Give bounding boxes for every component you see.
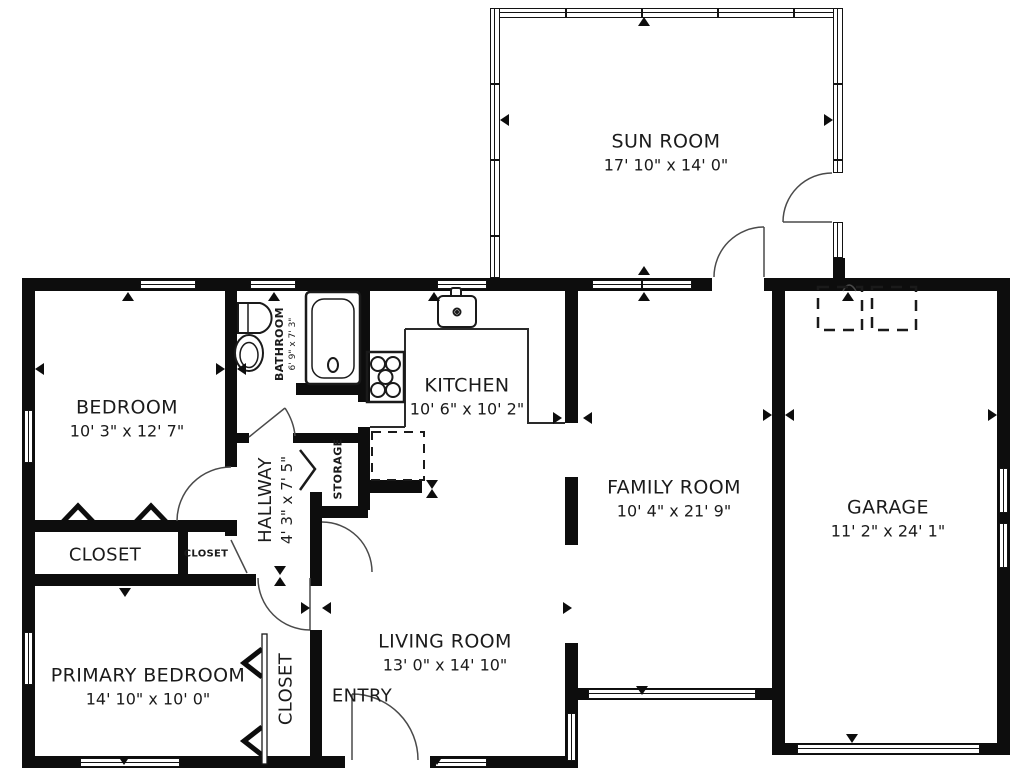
sunroom-family-door [714, 227, 764, 277]
window-garage-right-1 [999, 468, 1008, 513]
wall-kitchen-left [358, 291, 370, 402]
door-opening-entry [345, 756, 430, 768]
closet-rod-icon [244, 727, 262, 755]
bathtub-inner [312, 299, 354, 378]
room-name: CLOSET [277, 653, 298, 725]
window-kitchen-top [437, 280, 487, 289]
wall-family-left-mid [565, 477, 578, 545]
room-label-family-room: FAMILY ROOM 10' 4" x 21' 9" [607, 477, 741, 520]
kitchen-appliance-outline [372, 432, 424, 480]
window-bathroom-top [250, 280, 296, 289]
room-name: SUN ROOM [604, 131, 729, 153]
sunroom-window-wall-left [490, 8, 500, 278]
room-name: CLOSET [69, 546, 141, 567]
room-name: BATHROOM [274, 307, 287, 381]
garage-equipment-outline [872, 287, 916, 330]
wall-kitchen-family [565, 291, 578, 423]
room-dims: 10' 4" x 21' 9" [607, 502, 741, 520]
room-dims: 13' 0" x 14' 10" [378, 656, 512, 674]
label-closet-primary: CLOSET [277, 653, 298, 725]
wall-hall-left-stub [225, 520, 237, 536]
room-label-garage: GARAGE 11' 2" x 24' 1" [831, 497, 945, 540]
room-label-kitchen: KITCHEN 10' 6" x 10' 2" [410, 375, 524, 418]
wall-hall-top-stub [237, 433, 249, 443]
room-name: LIVING ROOM [378, 631, 512, 653]
sunroom-window-wall-right-upper [833, 8, 843, 173]
label-storage: STORAGE [333, 438, 346, 499]
room-label-sun-room: SUN ROOM 17' 10" x 14' 0" [604, 131, 729, 174]
room-name: PRIMARY BEDROOM [51, 665, 245, 687]
storage-bifold-door [300, 450, 315, 490]
bathtub-icon [306, 292, 360, 384]
window-bedroom-top [140, 280, 196, 289]
primary-closet-front [262, 634, 267, 764]
garage-equipment-outline [818, 287, 862, 330]
window-primary-left [24, 632, 33, 685]
room-dims: 6' 9" x 7' 3" [288, 307, 298, 381]
room-label-bathroom: BATHROOM 6' 9" x 7' 3" [274, 307, 298, 381]
kitchen-sink-icon [438, 288, 476, 327]
wall-hall-right [310, 492, 322, 576]
room-name: ENTRY [332, 687, 392, 708]
floor-plan: SUN ROOM 17' 10" x 14' 0" BEDROOM 10' 3"… [0, 0, 1024, 768]
sunroom-window-wall-top [490, 8, 843, 18]
hall-closet-door [231, 540, 247, 573]
window-divider [641, 280, 643, 289]
label-entry: ENTRY [332, 687, 392, 708]
room-label-hallway: HALLWAY 4' 3" x 7' 5" [256, 456, 296, 544]
window-bedroom-left [24, 410, 33, 463]
window-primary-bottom [80, 758, 180, 767]
room-dims: 14' 10" x 10' 0" [51, 690, 245, 708]
closet-rod-symbols [57, 506, 262, 755]
stove-icon [367, 352, 404, 402]
toilet-bowl [240, 343, 258, 368]
room-name: STORAGE [333, 438, 346, 499]
room-name: KITCHEN [410, 375, 524, 397]
window-garage-right-2 [999, 523, 1008, 568]
room-name: FAMILY ROOM [607, 477, 741, 499]
room-name: GARAGE [831, 497, 945, 519]
bedroom-door-arc [177, 467, 231, 521]
closet-rod-icon [244, 649, 262, 677]
vanity-sink-icon [238, 303, 272, 333]
room-dims: 17' 10" x 14' 0" [604, 156, 729, 174]
bathroom-door [249, 408, 295, 437]
room-dims: 4' 3" x 7' 5" [279, 456, 296, 544]
wall-closet-top [22, 520, 237, 532]
room-name: CLOSET [184, 548, 229, 560]
counter-line [370, 329, 405, 427]
garage-door [797, 744, 980, 754]
room-label-bedroom: BEDROOM 10' 3" x 12' 7" [70, 397, 184, 440]
wall-storage-right [358, 427, 370, 510]
sunroom-window-wall-right-lower [833, 222, 843, 258]
wall-garage-right [997, 278, 1010, 755]
room-dims: 11' 2" x 24' 1" [831, 522, 945, 540]
sunroom-side-door [783, 173, 832, 222]
room-name: BEDROOM [70, 397, 184, 419]
door-opening-primary-bedroom [256, 574, 310, 586]
wall-sunroom-corner [833, 258, 845, 278]
wall-family-garage [772, 278, 785, 755]
room-dims: 10' 3" x 12' 7" [70, 422, 184, 440]
room-label-primary-bedroom: PRIMARY BEDROOM 14' 10" x 10' 0" [51, 665, 245, 708]
wall-kitchen-bottom [368, 480, 422, 493]
bathtub-drain [328, 358, 338, 372]
hallway-living-door-arc [322, 522, 372, 572]
room-label-living-room: LIVING ROOM 13' 0" x 14' 10" [378, 631, 512, 674]
window-living-right [567, 713, 576, 761]
door-opening-sunroom-family [712, 278, 764, 291]
toilet-icon [235, 335, 263, 371]
wall-bedroom-right [225, 291, 237, 467]
label-closet-bedroom: CLOSET [69, 546, 141, 567]
label-closet-hall: CLOSET [184, 548, 229, 560]
room-name: HALLWAY [256, 456, 277, 544]
window-living-bottom [435, 758, 487, 767]
window-family-bottom [588, 689, 756, 699]
room-dims: 10' 6" x 10' 2" [410, 400, 524, 418]
wall-living-closet [310, 630, 322, 768]
